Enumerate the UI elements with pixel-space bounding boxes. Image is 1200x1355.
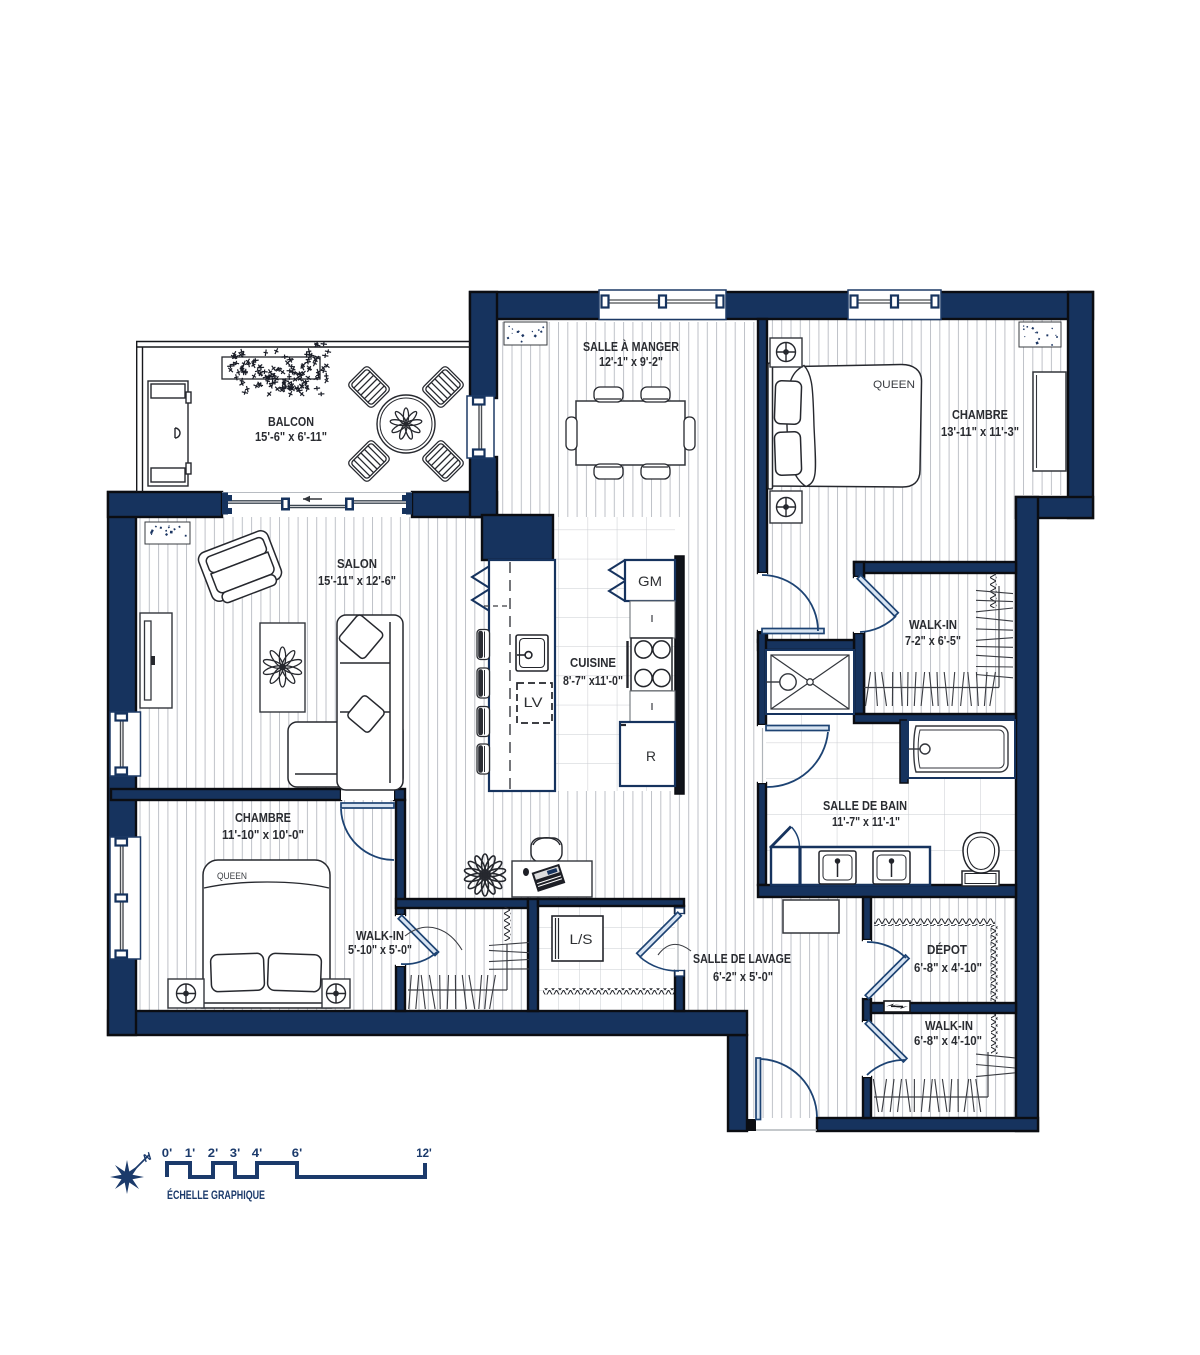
svg-text:WALK-IN: WALK-IN	[356, 928, 404, 943]
svg-text:6': 6'	[292, 1146, 303, 1160]
svg-text:CHAMBRE: CHAMBRE	[952, 407, 1008, 422]
svg-text:L/S: L/S	[570, 931, 593, 947]
svg-text:GM: GM	[638, 573, 662, 589]
svg-text:15'-6" x 6'-11": 15'-6" x 6'-11"	[255, 430, 327, 444]
svg-text:12'-1" x 9'-2": 12'-1" x 9'-2"	[599, 355, 663, 369]
svg-text:3': 3'	[230, 1146, 241, 1160]
svg-text:DÉPOT: DÉPOT	[927, 942, 967, 957]
svg-text:QUEEN: QUEEN	[873, 379, 915, 391]
svg-text:BALCON: BALCON	[268, 414, 314, 429]
svg-text:LV: LV	[524, 695, 543, 710]
svg-text:QUEEN: QUEEN	[217, 871, 247, 881]
svg-text:SALLE DE LAVAGE: SALLE DE LAVAGE	[693, 951, 791, 966]
svg-text:SALLE À MANGER: SALLE À MANGER	[583, 339, 680, 354]
svg-text:CUISINE: CUISINE	[570, 655, 616, 670]
svg-text:11'-10" x 10'-0": 11'-10" x 10'-0"	[222, 828, 304, 842]
svg-text:0': 0'	[162, 1146, 173, 1160]
svg-text:CHAMBRE: CHAMBRE	[235, 810, 291, 825]
svg-text:1': 1'	[185, 1146, 196, 1160]
svg-text:6'-8" x 4'-10": 6'-8" x 4'-10"	[914, 961, 982, 975]
svg-text:15'-11" x 12'-6": 15'-11" x 12'-6"	[318, 574, 396, 588]
svg-text:5'-10" x 5'-0": 5'-10" x 5'-0"	[348, 943, 412, 957]
svg-text:SALON: SALON	[337, 556, 377, 571]
svg-text:12': 12'	[416, 1146, 432, 1160]
svg-text:WALK-IN: WALK-IN	[909, 617, 957, 632]
svg-text:8'-7" x11'-0": 8'-7" x11'-0"	[563, 674, 623, 688]
svg-text:11'-7" x 11'-1": 11'-7" x 11'-1"	[832, 815, 900, 829]
svg-text:4': 4'	[252, 1146, 263, 1160]
svg-text:2': 2'	[208, 1146, 219, 1160]
svg-text:6'-8" x 4'-10": 6'-8" x 4'-10"	[914, 1034, 982, 1048]
svg-text:ÉCHELLE GRAPHIQUE: ÉCHELLE GRAPHIQUE	[167, 1187, 265, 1202]
svg-text:WALK-IN: WALK-IN	[925, 1018, 973, 1033]
svg-text:6'-2" x 5'-0": 6'-2" x 5'-0"	[713, 970, 773, 984]
svg-text:13'-11" x 11'-3": 13'-11" x 11'-3"	[941, 425, 1019, 439]
svg-text:SALLE DE BAIN: SALLE DE BAIN	[823, 798, 907, 813]
svg-text:7-2" x 6'-5": 7-2" x 6'-5"	[905, 634, 961, 648]
svg-text:R: R	[646, 748, 656, 764]
